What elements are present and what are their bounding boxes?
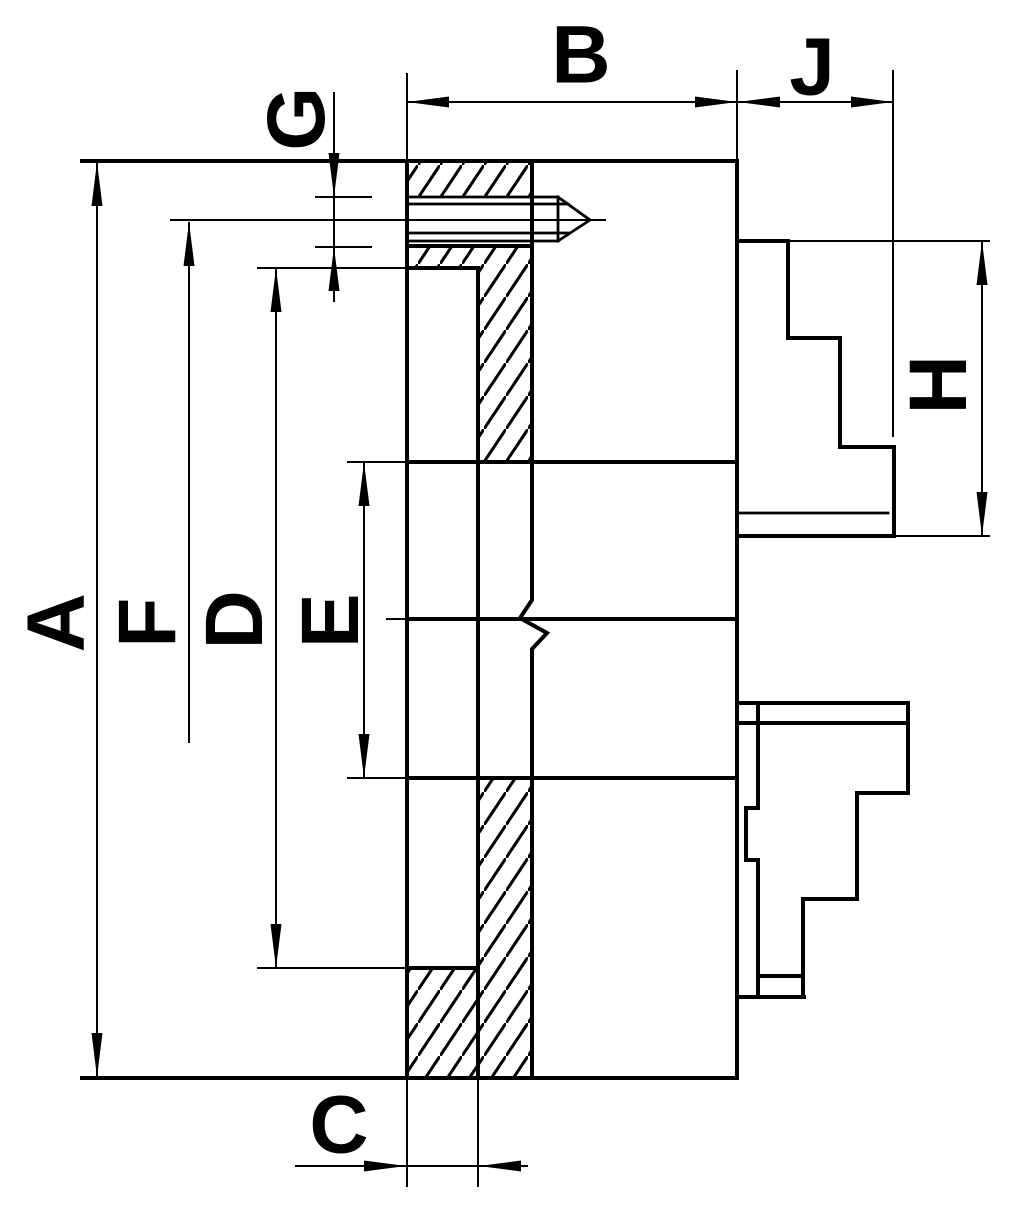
dim-label-d: D	[194, 590, 276, 649]
top-jaw-outline	[737, 241, 894, 536]
bottom-jaw-outline	[737, 703, 908, 997]
dim-label-f: F	[107, 598, 189, 648]
hatch-lower-hub	[407, 778, 532, 1078]
dim-label-h: H	[898, 355, 980, 414]
dim-label-j: J	[789, 27, 835, 109]
dim-label-a: A	[16, 593, 98, 652]
chuck-section-technical-drawing: A F D E G H B J C	[0, 0, 1024, 1216]
dim-label-g: G	[256, 87, 338, 151]
dim-label-e: E	[290, 593, 372, 648]
hatch-upper-hub	[407, 246, 532, 461]
dim-label-c: C	[309, 1085, 368, 1167]
hatch-top-flange	[407, 161, 532, 197]
dim-label-b: B	[551, 15, 610, 97]
